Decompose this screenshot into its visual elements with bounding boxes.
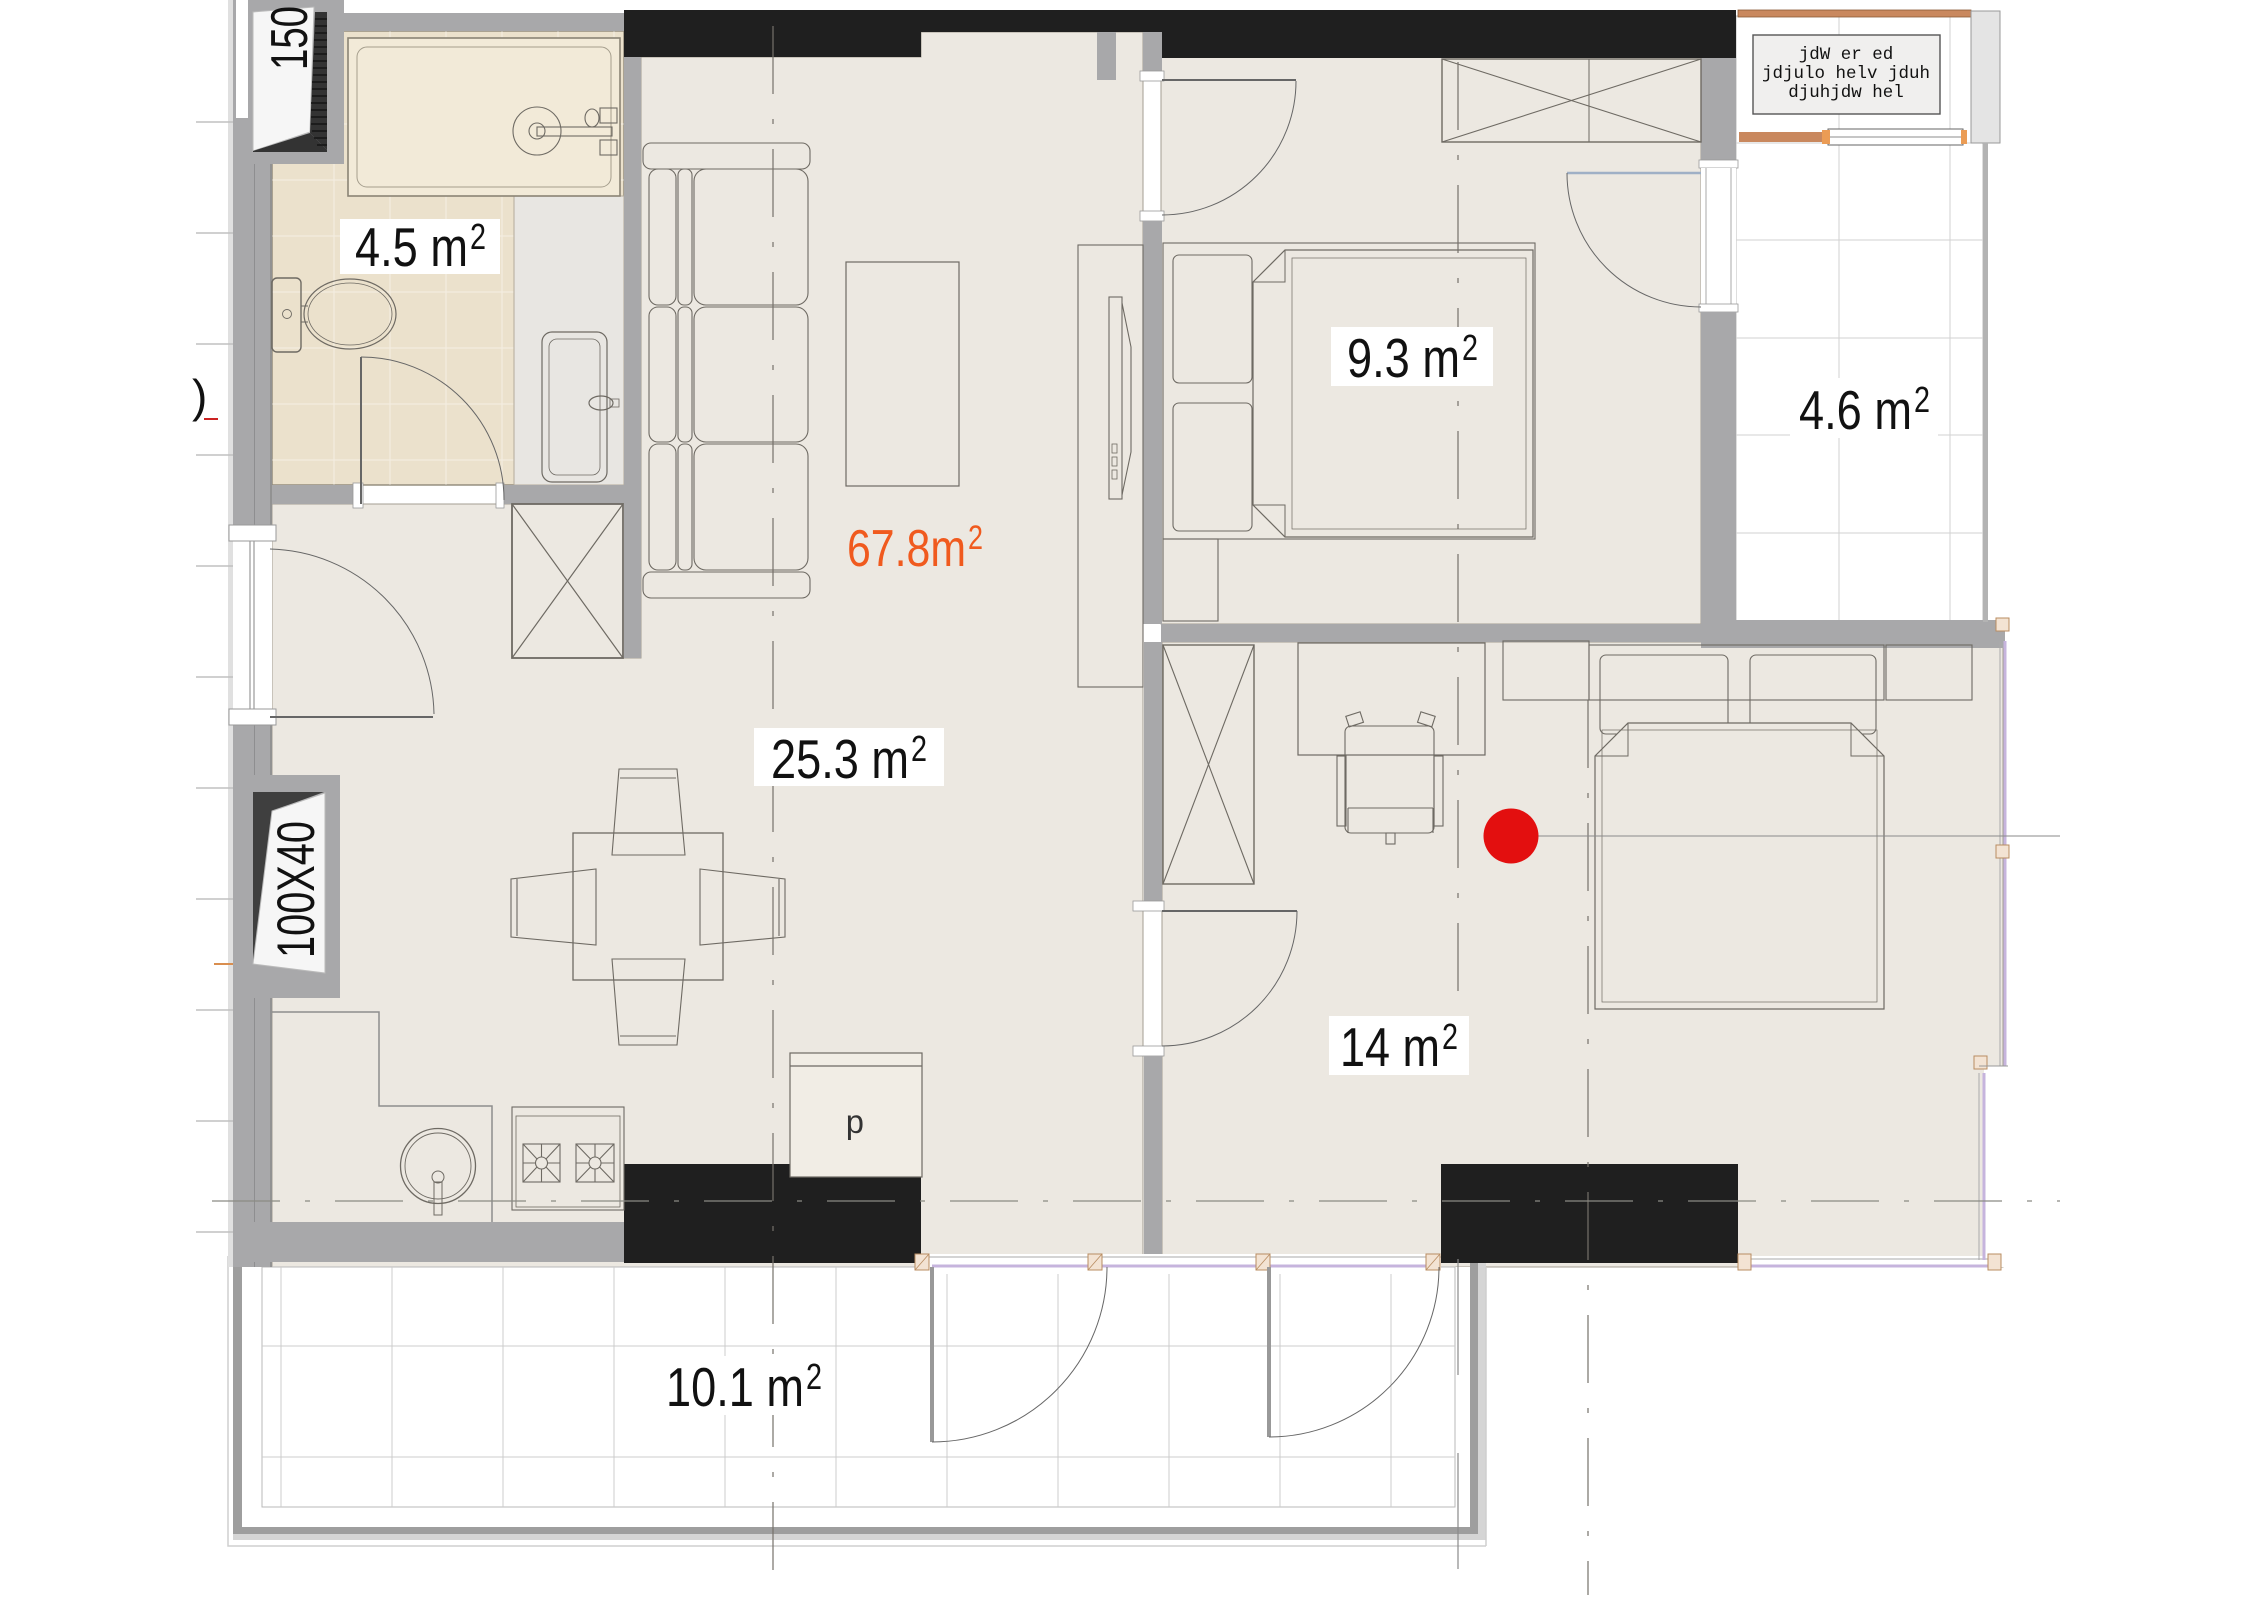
svg-text:2: 2: [470, 216, 486, 257]
svg-text:): ): [192, 370, 207, 422]
svg-text:150: 150: [261, 6, 319, 70]
svg-text:4.6 m: 4.6 m: [1799, 379, 1912, 441]
svg-text:100X40: 100X40: [267, 821, 326, 958]
svg-text:4.5 m: 4.5 m: [355, 216, 468, 278]
svg-text:jdjulo helv jduh: jdjulo helv jduh: [1762, 64, 1930, 84]
svg-text:2: 2: [1462, 327, 1478, 368]
svg-text:djuhjdw hel: djuhjdw hel: [1788, 83, 1904, 103]
svg-text:2: 2: [968, 519, 983, 557]
svg-text:jdW er ed: jdW er ed: [1799, 45, 1894, 65]
svg-text:2: 2: [1442, 1016, 1458, 1057]
svg-text:10.1 m: 10.1 m: [666, 1356, 804, 1418]
svg-text:25.3 m: 25.3 m: [771, 728, 909, 790]
svg-text:p: p: [845, 1106, 865, 1143]
svg-text:2: 2: [1914, 379, 1930, 420]
svg-text:9.3 m: 9.3 m: [1347, 327, 1460, 389]
svg-text:2: 2: [806, 1356, 822, 1397]
svg-text:14 m: 14 m: [1340, 1016, 1440, 1078]
svg-text:67.8m: 67.8m: [847, 520, 966, 578]
svg-text:2: 2: [911, 728, 927, 769]
